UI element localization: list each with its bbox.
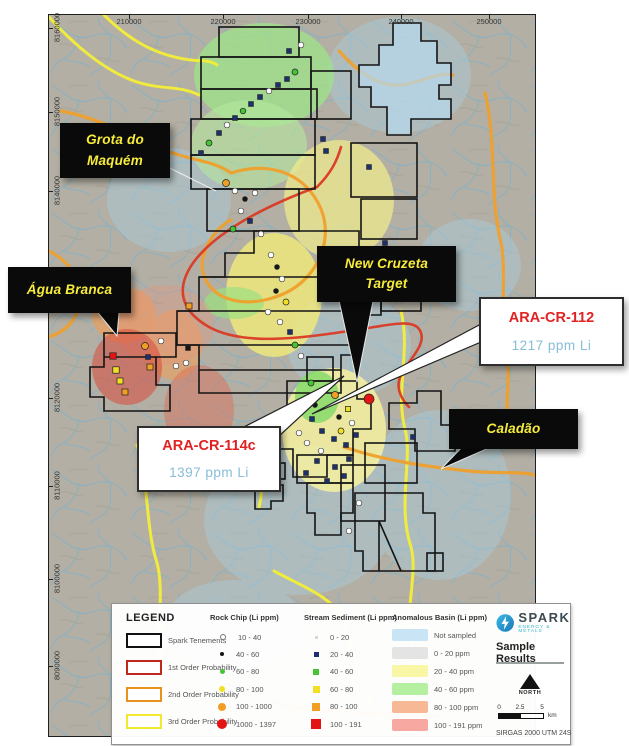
sample-point [232, 188, 238, 194]
legend-branding-column: SPARK ENERGY & METALS Sample Results NOR… [496, 604, 568, 744]
legend-marker [312, 703, 320, 711]
axis-tick [48, 398, 53, 399]
legend-label: 40 - 60 [236, 650, 259, 659]
sample-point [292, 69, 298, 75]
sample-point [324, 149, 329, 154]
callout-text: Maquém [87, 151, 143, 171]
sample-point [333, 465, 338, 470]
legend-marker [220, 669, 225, 674]
sample-point [304, 471, 309, 476]
sample-point [296, 430, 302, 436]
axis-tick [48, 486, 53, 487]
sample-point [279, 276, 285, 282]
sample-point [298, 42, 304, 48]
axis-tick [308, 14, 309, 19]
axis-tick [401, 14, 402, 19]
sample-point [354, 433, 359, 438]
legend-row: 20 - 40 ppm [392, 664, 492, 678]
sample-point [122, 389, 128, 395]
legend-marker [219, 686, 225, 692]
sample-point [186, 303, 192, 309]
sample-point [173, 363, 179, 369]
legend-row: 80 - 100 [210, 682, 302, 696]
sample-point [199, 151, 204, 156]
sample-point [320, 429, 325, 434]
sample-point [274, 289, 279, 294]
scale-tick-2: 5 [534, 704, 550, 711]
sample-id: ARA-CR-114c [162, 438, 255, 454]
legend-label: 100 - 1000 [236, 702, 272, 711]
spark-logo: SPARK ENERGY & METALS [496, 611, 572, 635]
legend-swatch [392, 629, 428, 641]
sample-point [217, 131, 222, 136]
sample-point [265, 309, 271, 315]
sample-point [318, 448, 324, 454]
legend-label: 60 - 80 [330, 685, 353, 694]
legend-label: 100 - 191 [330, 720, 362, 729]
legend-label: 10 - 40 [238, 633, 261, 642]
sample-point [268, 252, 274, 258]
legend-swatch [392, 701, 428, 713]
sample-point [283, 299, 289, 305]
sample-point [299, 405, 304, 410]
legend-row: 20 - 40 [304, 647, 390, 661]
legend-label: 60 - 80 [236, 667, 259, 676]
sample-point [233, 116, 238, 121]
legend-panel: LEGEND Spark Tenements1st Order Probabil… [111, 603, 571, 745]
north-arrow-icon [520, 674, 540, 689]
legend-row: 40 - 60 [304, 665, 390, 679]
legend-label: 0 - 20 [330, 633, 349, 642]
sample-point [252, 190, 258, 196]
legend-marker [314, 652, 319, 657]
callout-ara-cr-112: ARA-CR-112 1217 ppm Li [479, 297, 624, 366]
sample-point [304, 440, 310, 446]
sample-point [356, 500, 362, 506]
sample-point [249, 102, 254, 107]
legend-marker [313, 669, 319, 675]
legend-tenements-column: Spark Tenements1st Order Probability2nd … [112, 604, 208, 744]
legend-marker [315, 636, 318, 639]
legend-label: 0 - 20 ppm [434, 649, 470, 658]
sample-point [243, 197, 248, 202]
callout-text: Água Branca [27, 280, 112, 300]
sample-point [364, 394, 374, 404]
legend-row: 40 - 60 [210, 647, 302, 661]
sample-id: ARA-CR-112 [509, 310, 594, 326]
legend-label: 100 - 191 ppm [434, 721, 482, 730]
legend-marker [217, 719, 227, 729]
sample-value: 1217 ppm Li [512, 338, 592, 353]
sample-point [315, 459, 320, 464]
callout-caladao: Caladão [449, 409, 578, 449]
scale-tick-1: 2.5 [512, 704, 528, 711]
scale-tick-0: 0 [491, 704, 507, 711]
sample-point [238, 208, 244, 214]
legend-row: 10 - 40 [210, 630, 302, 644]
sample-point [142, 343, 149, 350]
sample-point [266, 88, 272, 94]
north-arrow: NORTH [514, 674, 546, 696]
legend-row: 80 - 100 [304, 700, 390, 714]
legend-swatch [392, 719, 428, 731]
spark-logo-subtext: ENERGY & METALS [518, 626, 572, 636]
sample-point [411, 435, 416, 440]
sample-point [206, 140, 212, 146]
sample-point [332, 437, 337, 442]
sample-point [240, 108, 246, 114]
legend-anomalous-basin-column: Not sampled0 - 20 ppm20 - 40 ppm40 - 60 … [392, 604, 492, 744]
sample-point [287, 49, 292, 54]
sample-point [223, 180, 230, 187]
legend-label: Not sampled [434, 631, 476, 640]
axis-left-label: 8110000 [53, 463, 62, 509]
legend-swatch [392, 665, 428, 677]
legend-row: 60 - 80 [210, 665, 302, 679]
legend-row: 1000 - 1397 [210, 717, 302, 731]
sample-point [258, 95, 263, 100]
legend-marker [220, 634, 226, 640]
sample-point [313, 403, 318, 408]
legend-label: 20 - 40 ppm [434, 667, 474, 676]
sample-point [288, 330, 293, 335]
legend-swatch [126, 660, 162, 675]
axis-tick [48, 28, 53, 29]
sample-value: 1397 ppm Li [169, 465, 249, 480]
axis-tick [48, 191, 53, 192]
axis-tick [48, 666, 53, 667]
sample-point [292, 414, 298, 420]
axis-left-label: 8160000 [53, 5, 62, 51]
axis-tick [129, 14, 130, 19]
sample-point [292, 342, 298, 348]
axis-tick [48, 579, 53, 580]
legend-marker [220, 652, 224, 656]
scale-bar-line [498, 713, 544, 719]
legend-label: 40 - 60 [330, 667, 353, 676]
axis-left-label: 8120000 [53, 375, 62, 421]
sample-point [325, 479, 330, 484]
sample-point [276, 83, 281, 88]
sample-point [230, 226, 236, 232]
legend-row: 100 - 191 [304, 717, 390, 731]
legend-row: 80 - 100 ppm [392, 700, 492, 714]
legend-rock-chip-column: 10 - 4040 - 6060 - 8080 - 100100 - 10001… [210, 604, 302, 744]
sample-point [113, 367, 119, 373]
sample-point [147, 364, 153, 370]
legend-row: 0 - 20 ppm [392, 646, 492, 660]
legend-marker [218, 703, 226, 711]
sample-point [342, 474, 347, 479]
legend-swatch [126, 633, 162, 648]
legend-label: 1000 - 1397 [236, 720, 276, 729]
sample-point [117, 378, 123, 384]
legend-row: 100 - 191 ppm [392, 718, 492, 732]
sample-point [337, 415, 342, 420]
legend-label: 40 - 60 ppm [434, 685, 474, 694]
legend-row: 100 - 1000 [210, 700, 302, 714]
sample-point [347, 457, 352, 462]
callout-text: Grota do [86, 130, 144, 150]
sample-point [310, 417, 315, 422]
legend-row: 60 - 80 [304, 682, 390, 696]
sample-point [367, 165, 372, 170]
sample-point [110, 353, 116, 359]
sample-point [308, 380, 314, 386]
sample-point [346, 528, 352, 534]
legend-swatch [126, 687, 162, 702]
callout-text: Target [366, 274, 408, 294]
sample-point [344, 443, 349, 448]
legend-label: 80 - 100 ppm [434, 703, 478, 712]
legend-swatch [392, 647, 428, 659]
axis-tick [48, 112, 53, 113]
sample-point [332, 392, 339, 399]
legend-row: Not sampled [392, 628, 492, 642]
sample-point [349, 420, 355, 426]
spark-logo-icon [496, 613, 514, 633]
sample-point [183, 360, 189, 366]
legend-swatch [392, 683, 428, 695]
callout-new-cruzeta-target: New Cruzeta Target [317, 246, 456, 302]
axis-tick [223, 14, 224, 19]
callout-agua-branca: Água Branca [8, 267, 131, 313]
legend-marker [313, 686, 320, 693]
scale-unit: km [548, 712, 557, 719]
sample-point [277, 319, 283, 325]
axis-tick [489, 14, 490, 19]
sample-point [146, 355, 151, 360]
report-page: 210000220000230000240000250000 816000081… [0, 0, 629, 746]
sample-point [338, 428, 344, 434]
axis-left-label: 8100000 [53, 556, 62, 602]
sample-point [298, 353, 304, 359]
legend-label: 80 - 100 [330, 702, 358, 711]
legend-row: 40 - 60 ppm [392, 682, 492, 696]
legend-stream-sediment-column: 0 - 2020 - 4040 - 6060 - 8080 - 100100 -… [304, 604, 390, 744]
sample-point [345, 406, 350, 411]
sample-point [248, 219, 253, 224]
sample-point [258, 231, 264, 237]
legend-label: 20 - 40 [330, 650, 353, 659]
axis-left-label: 8090000 [53, 643, 62, 689]
sample-point [383, 241, 388, 246]
sample-point [186, 346, 191, 351]
legend-marker [311, 719, 321, 729]
sample-point [321, 137, 326, 142]
callout-text: New Cruzeta [345, 254, 428, 274]
callout-grota-do-maquem: Grota do Maquém [60, 123, 170, 178]
datum-label: SIRGAS 2000 UTM 24S [496, 730, 571, 737]
sample-point [158, 338, 164, 344]
callout-ara-cr-114c: ARA-CR-114c 1397 ppm Li [137, 426, 281, 492]
scale-bar: 0 2.5 5 km [496, 704, 568, 726]
legend-swatch [126, 714, 162, 729]
callout-text: Caladão [487, 419, 541, 439]
sample-point [275, 265, 280, 270]
divider [496, 662, 564, 664]
north-label: NORTH [514, 690, 546, 696]
sample-point [285, 77, 290, 82]
spark-logo-text: SPARK [518, 611, 572, 624]
legend-label: 80 - 100 [236, 685, 264, 694]
sample-point [224, 122, 230, 128]
legend-row: 0 - 20 [304, 630, 390, 644]
